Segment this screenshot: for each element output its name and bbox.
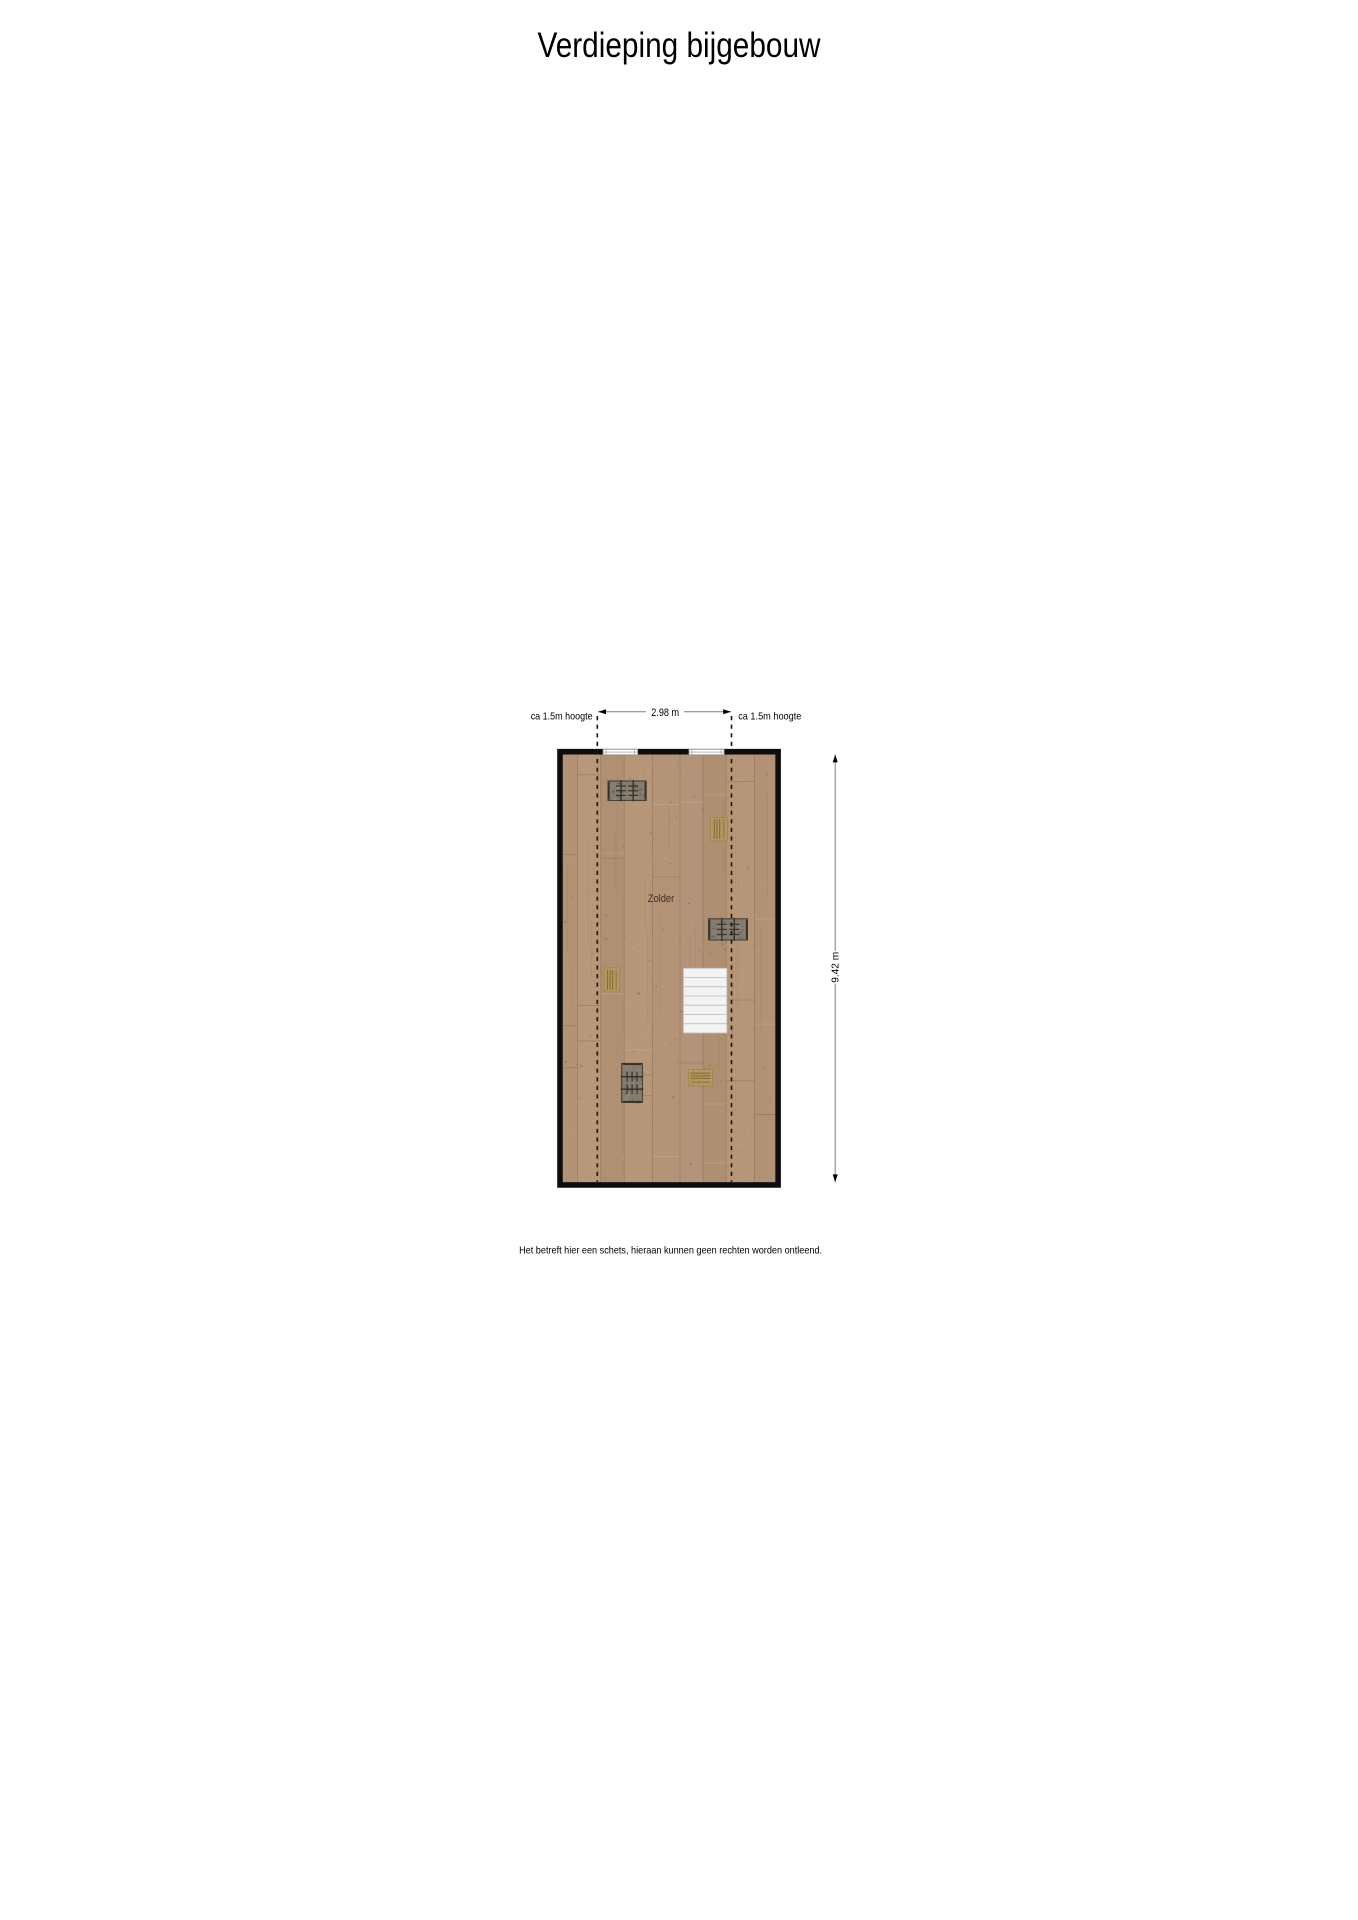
svg-text:ca 1.5m hoogte: ca 1.5m hoogte [531,711,593,722]
svg-text:Het betreft hier een schets, h: Het betreft hier een schets, hieraan kun… [519,1244,822,1256]
svg-text:Verdieping bijgebouw: Verdieping bijgebouw [538,26,822,65]
svg-text:ca 1.5m hoogte: ca 1.5m hoogte [738,711,801,722]
svg-text:2.98 m: 2.98 m [651,707,679,719]
svg-text:9.42 m: 9.42 m [830,952,842,983]
svg-text:Zolder: Zolder [648,893,675,905]
